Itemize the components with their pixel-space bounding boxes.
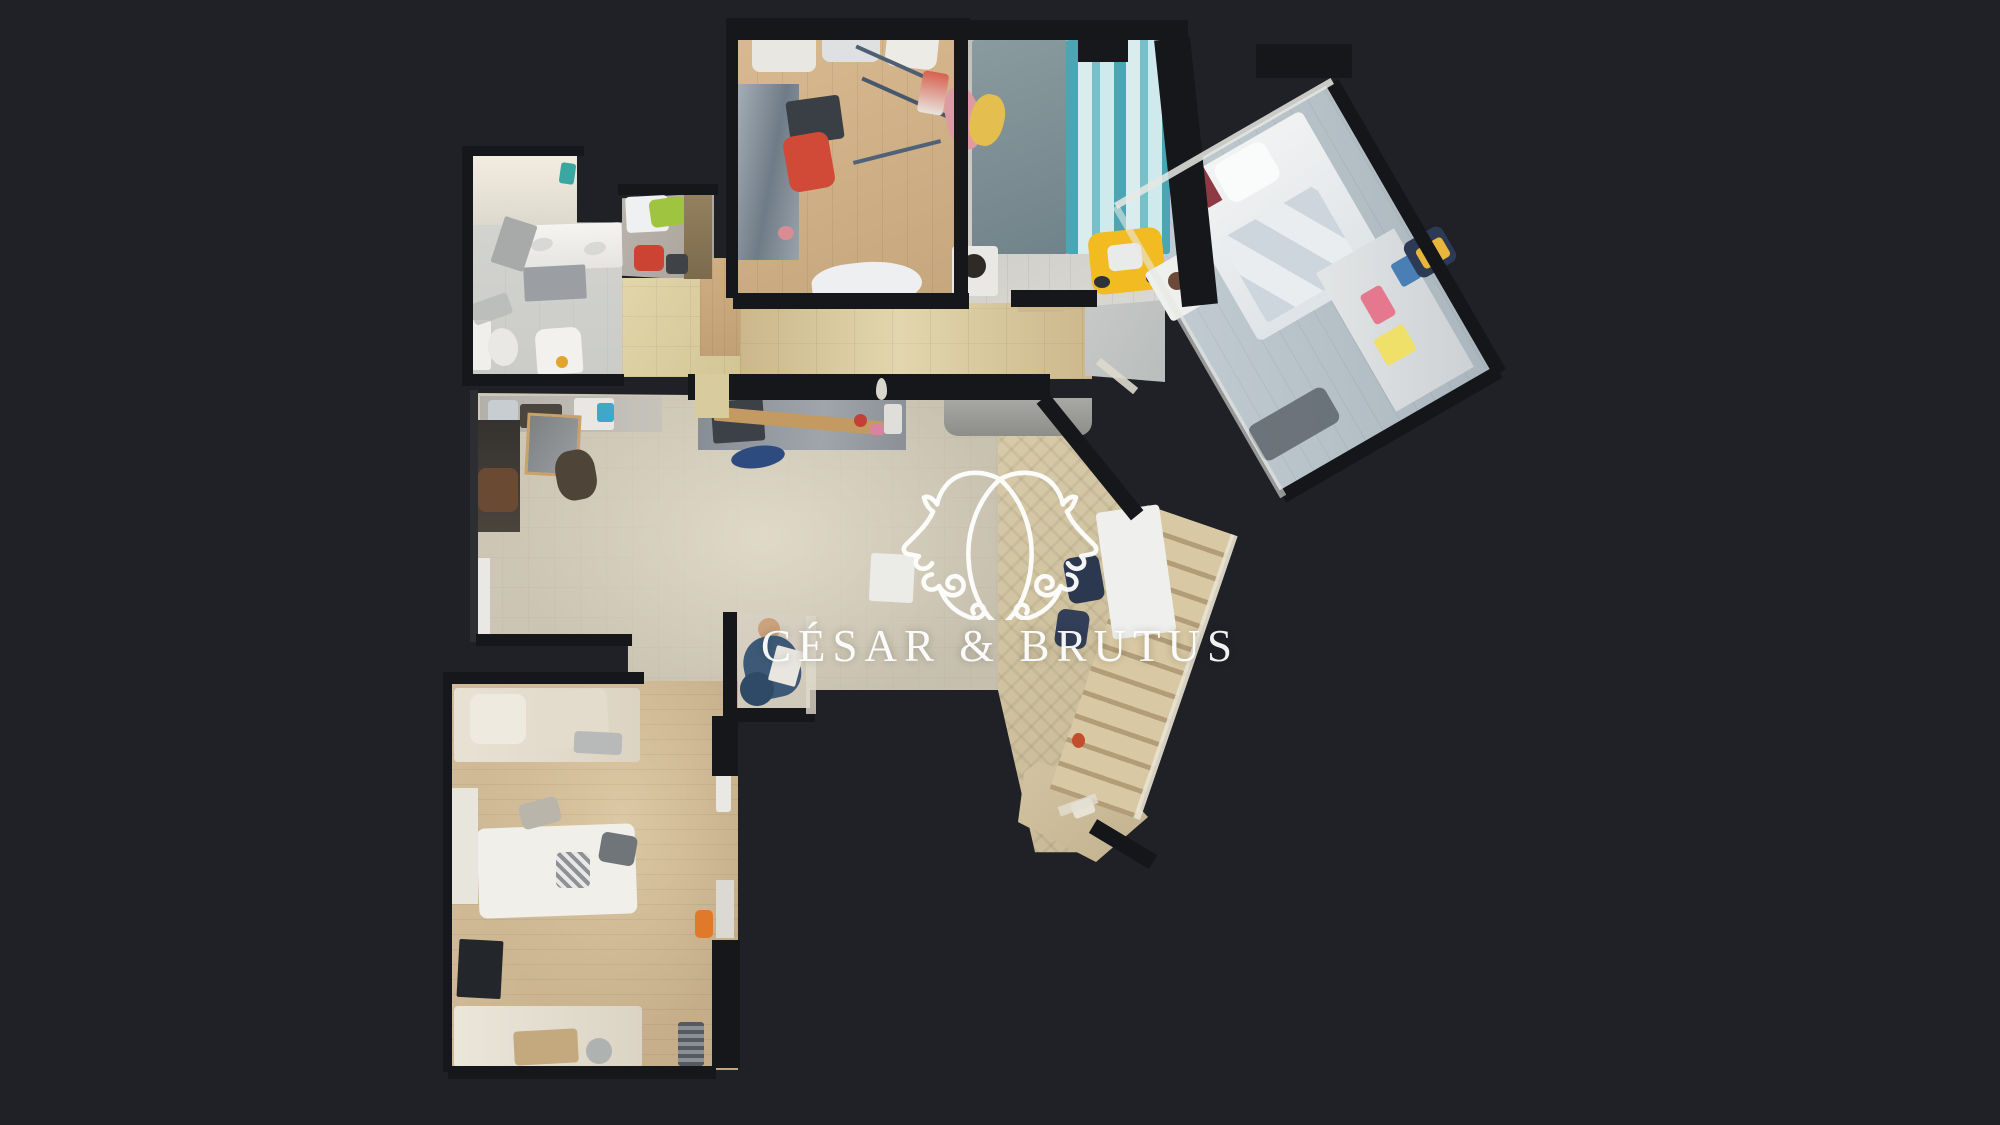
wall-kitchen-right2 — [712, 940, 740, 1068]
kitchen-fridge-strip — [716, 880, 734, 938]
kitchen-left-counter — [450, 788, 478, 904]
laundry-dark-item — [666, 254, 688, 274]
living-brown-blanket — [478, 468, 518, 512]
wall-bedroom2-bottom — [1011, 290, 1097, 307]
kitchen-chair-dark — [598, 831, 639, 867]
laundry-brown-strip — [684, 193, 712, 279]
bedroom2-duvet-striped — [1066, 40, 1170, 254]
wall-living-left — [470, 390, 478, 642]
laundry-green-basket — [648, 196, 688, 229]
wall-bedroom1-right — [954, 36, 968, 298]
wall-bedroom3-notch — [1256, 44, 1352, 78]
wall-bathroom-bottom — [462, 374, 624, 386]
living-radiator — [476, 558, 490, 636]
kitchen-counter-clutter1 — [470, 694, 526, 744]
wall-bathroom-left — [462, 150, 473, 380]
wall-bedroom1-bottom — [733, 293, 969, 309]
wall-person-left — [723, 612, 737, 712]
bedroom1-red-toy — [781, 130, 836, 193]
corridor-gray-end-floor — [1085, 300, 1165, 382]
kitchen-tv — [457, 939, 504, 999]
laundry-red-bucket — [634, 245, 664, 271]
living-white-cabinet — [869, 553, 915, 603]
tour-viewer-stage: CÉSAR & BRUTUS — [0, 0, 2000, 1125]
kitchen-pot — [586, 1038, 612, 1064]
bedroom2-bed-sheet — [972, 40, 1068, 254]
living-closet-red-item — [854, 414, 867, 427]
kitchen-wood-bench — [513, 1028, 579, 1065]
bathroom-washer-knob — [556, 356, 568, 368]
corridor-floor — [740, 303, 1092, 379]
bathroom-gray-mat — [523, 264, 587, 301]
living-shelf-blue-item — [597, 403, 614, 422]
hall-red-item — [1072, 733, 1085, 748]
hall-navy-chair1 — [1062, 553, 1105, 605]
living-closet-white-item — [884, 404, 902, 434]
kitchen-chair-striped — [556, 852, 590, 888]
bathroom-washer — [534, 326, 583, 375]
kitchen-metal-item — [573, 731, 622, 755]
wall-bedroom2-top — [966, 20, 1188, 40]
wall-kitchen-top — [448, 672, 644, 684]
kitchen-orange-bin — [695, 910, 713, 938]
hall-navy-chair2 — [1054, 608, 1091, 650]
wall-living-top — [688, 374, 1050, 400]
wall-bedroom1-top — [726, 18, 970, 40]
wall-laundry-top — [618, 184, 718, 195]
bedroom1-pink-item — [778, 226, 794, 240]
bathroom-teal-towel — [559, 162, 577, 185]
wall-light-fixture — [876, 378, 887, 400]
sunlit-edge-person-right — [806, 616, 816, 714]
wall-kitchen-right1 — [712, 716, 738, 776]
wall-living-bottom1 — [476, 634, 632, 646]
wall-bathroom-top — [462, 146, 584, 156]
wall-kitchen-left — [443, 672, 452, 1072]
wall-bedroom1-left — [726, 30, 738, 298]
floorplan-3d-view[interactable] — [0, 0, 2000, 1125]
kitchen-gray-clutter — [678, 1022, 704, 1066]
wall-kitchen-bottom — [448, 1066, 716, 1079]
bedroom2-toy-car-wheel1 — [1094, 276, 1110, 288]
door-gap-floor — [695, 374, 729, 418]
living-closet-pink-item — [870, 424, 885, 435]
